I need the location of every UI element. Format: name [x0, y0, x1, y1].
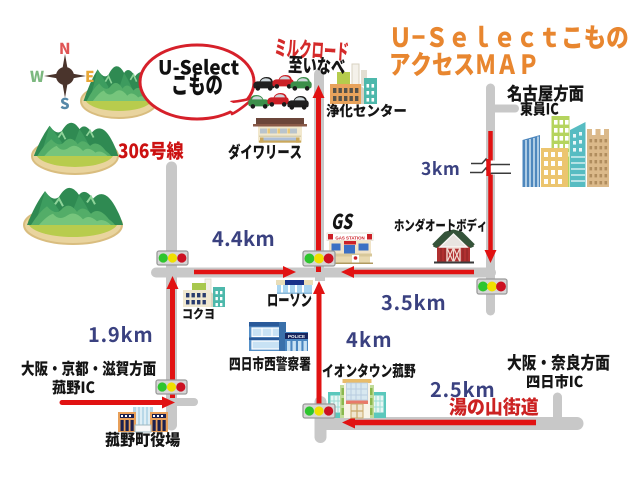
svg-text:GAS STATION: GAS STATION [335, 236, 364, 241]
svg-text:POLICE: POLICE [288, 334, 305, 339]
